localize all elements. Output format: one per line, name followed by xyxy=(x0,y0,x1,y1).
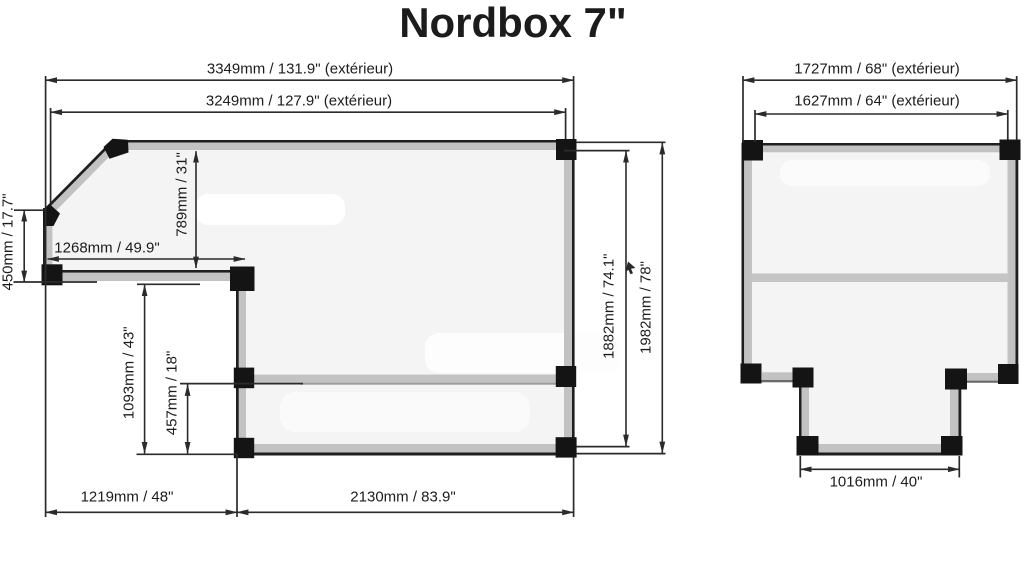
svg-text:1982mm / 78": 1982mm / 78" xyxy=(638,261,655,354)
svg-text:Nordbox 7": Nordbox 7" xyxy=(399,0,627,46)
svg-text:457mm / 18": 457mm / 18" xyxy=(163,351,180,436)
svg-text:1727mm / 68" (extérieur): 1727mm / 68" (extérieur) xyxy=(794,61,959,78)
svg-text:789mm / 31": 789mm / 31" xyxy=(174,152,191,237)
svg-text:450mm / 17.7": 450mm / 17.7" xyxy=(0,193,17,290)
svg-text:1219mm / 48": 1219mm / 48" xyxy=(81,488,174,505)
svg-text:1268mm / 49.9": 1268mm / 49.9" xyxy=(54,239,159,256)
svg-text:1016mm / 40": 1016mm / 40" xyxy=(830,473,923,490)
svg-text:1093mm / 43": 1093mm / 43" xyxy=(121,326,138,419)
svg-text:1882mm / 74.1": 1882mm / 74.1" xyxy=(601,254,618,359)
svg-text:3249mm / 127.9" (extérieur): 3249mm / 127.9" (extérieur) xyxy=(206,92,392,109)
svg-text:2130mm / 83.9": 2130mm / 83.9" xyxy=(350,488,455,505)
svg-text:1627mm / 64" (extérieur): 1627mm / 64" (extérieur) xyxy=(794,92,959,109)
svg-text:3349mm / 131.9" (extérieur): 3349mm / 131.9" (extérieur) xyxy=(207,61,393,78)
